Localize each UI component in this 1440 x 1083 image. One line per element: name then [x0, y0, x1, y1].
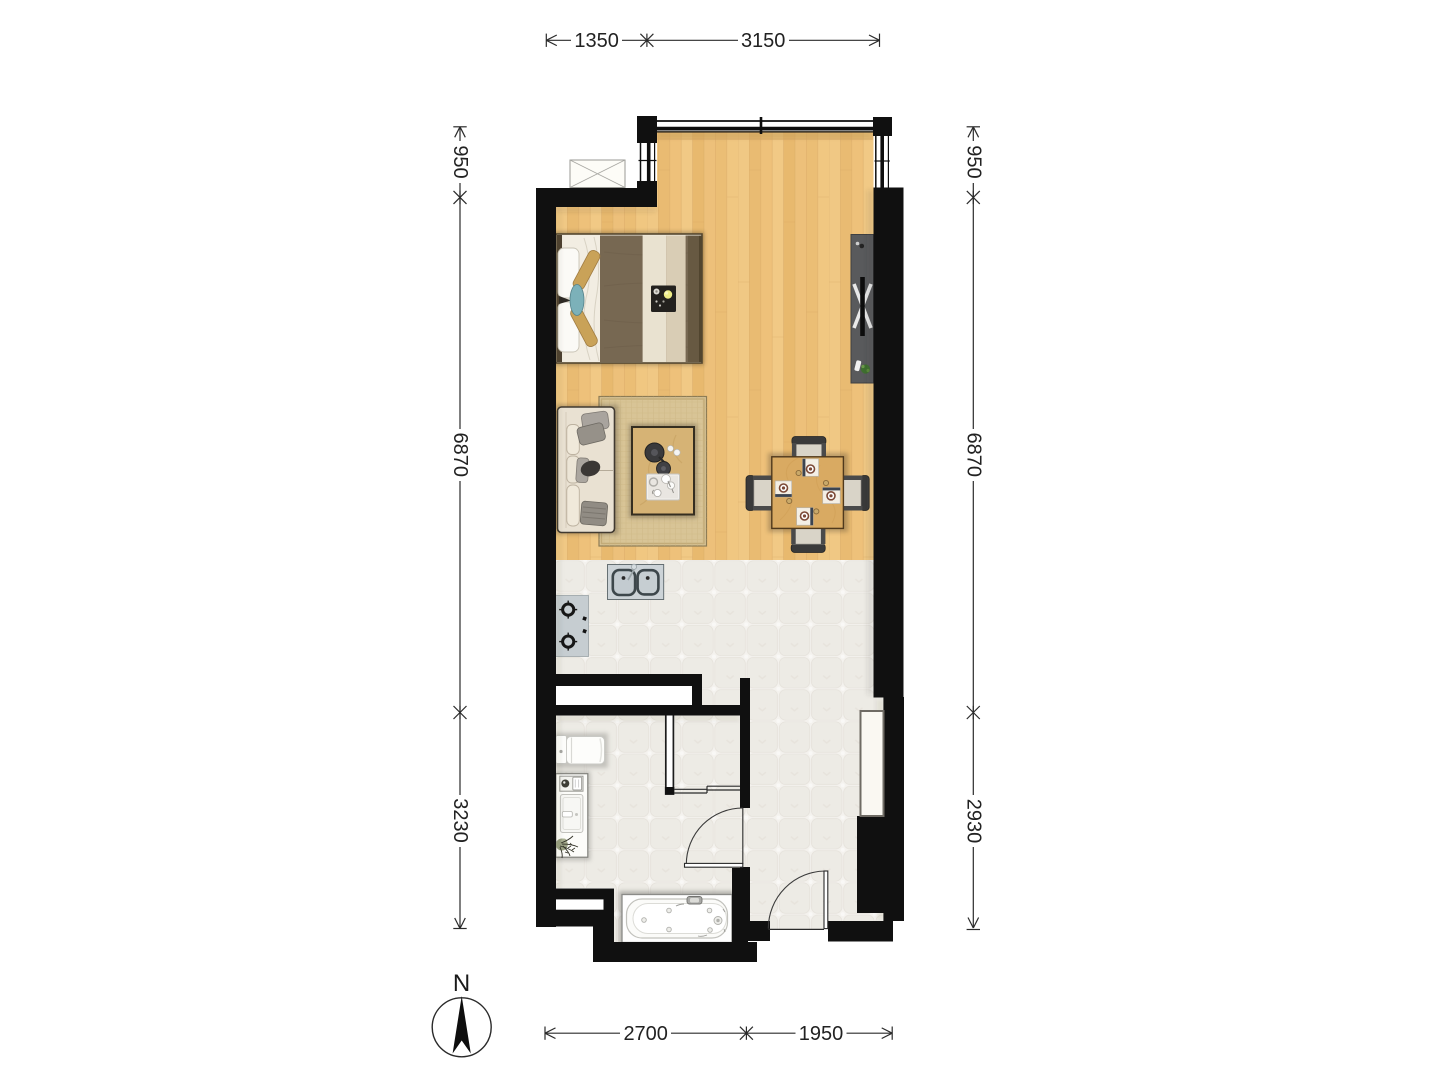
svg-text:2930: 2930 [962, 799, 984, 844]
svg-text:1350: 1350 [574, 30, 619, 52]
svg-text:1950: 1950 [799, 1023, 844, 1045]
svg-text:950: 950 [962, 145, 984, 178]
svg-text:N: N [453, 970, 470, 997]
svg-text:3150: 3150 [741, 30, 786, 52]
svg-text:6870: 6870 [962, 433, 984, 478]
svg-text:2700: 2700 [623, 1023, 668, 1045]
svg-text:950: 950 [449, 145, 471, 178]
svg-text:3230: 3230 [449, 798, 471, 843]
svg-text:6870: 6870 [449, 433, 471, 478]
